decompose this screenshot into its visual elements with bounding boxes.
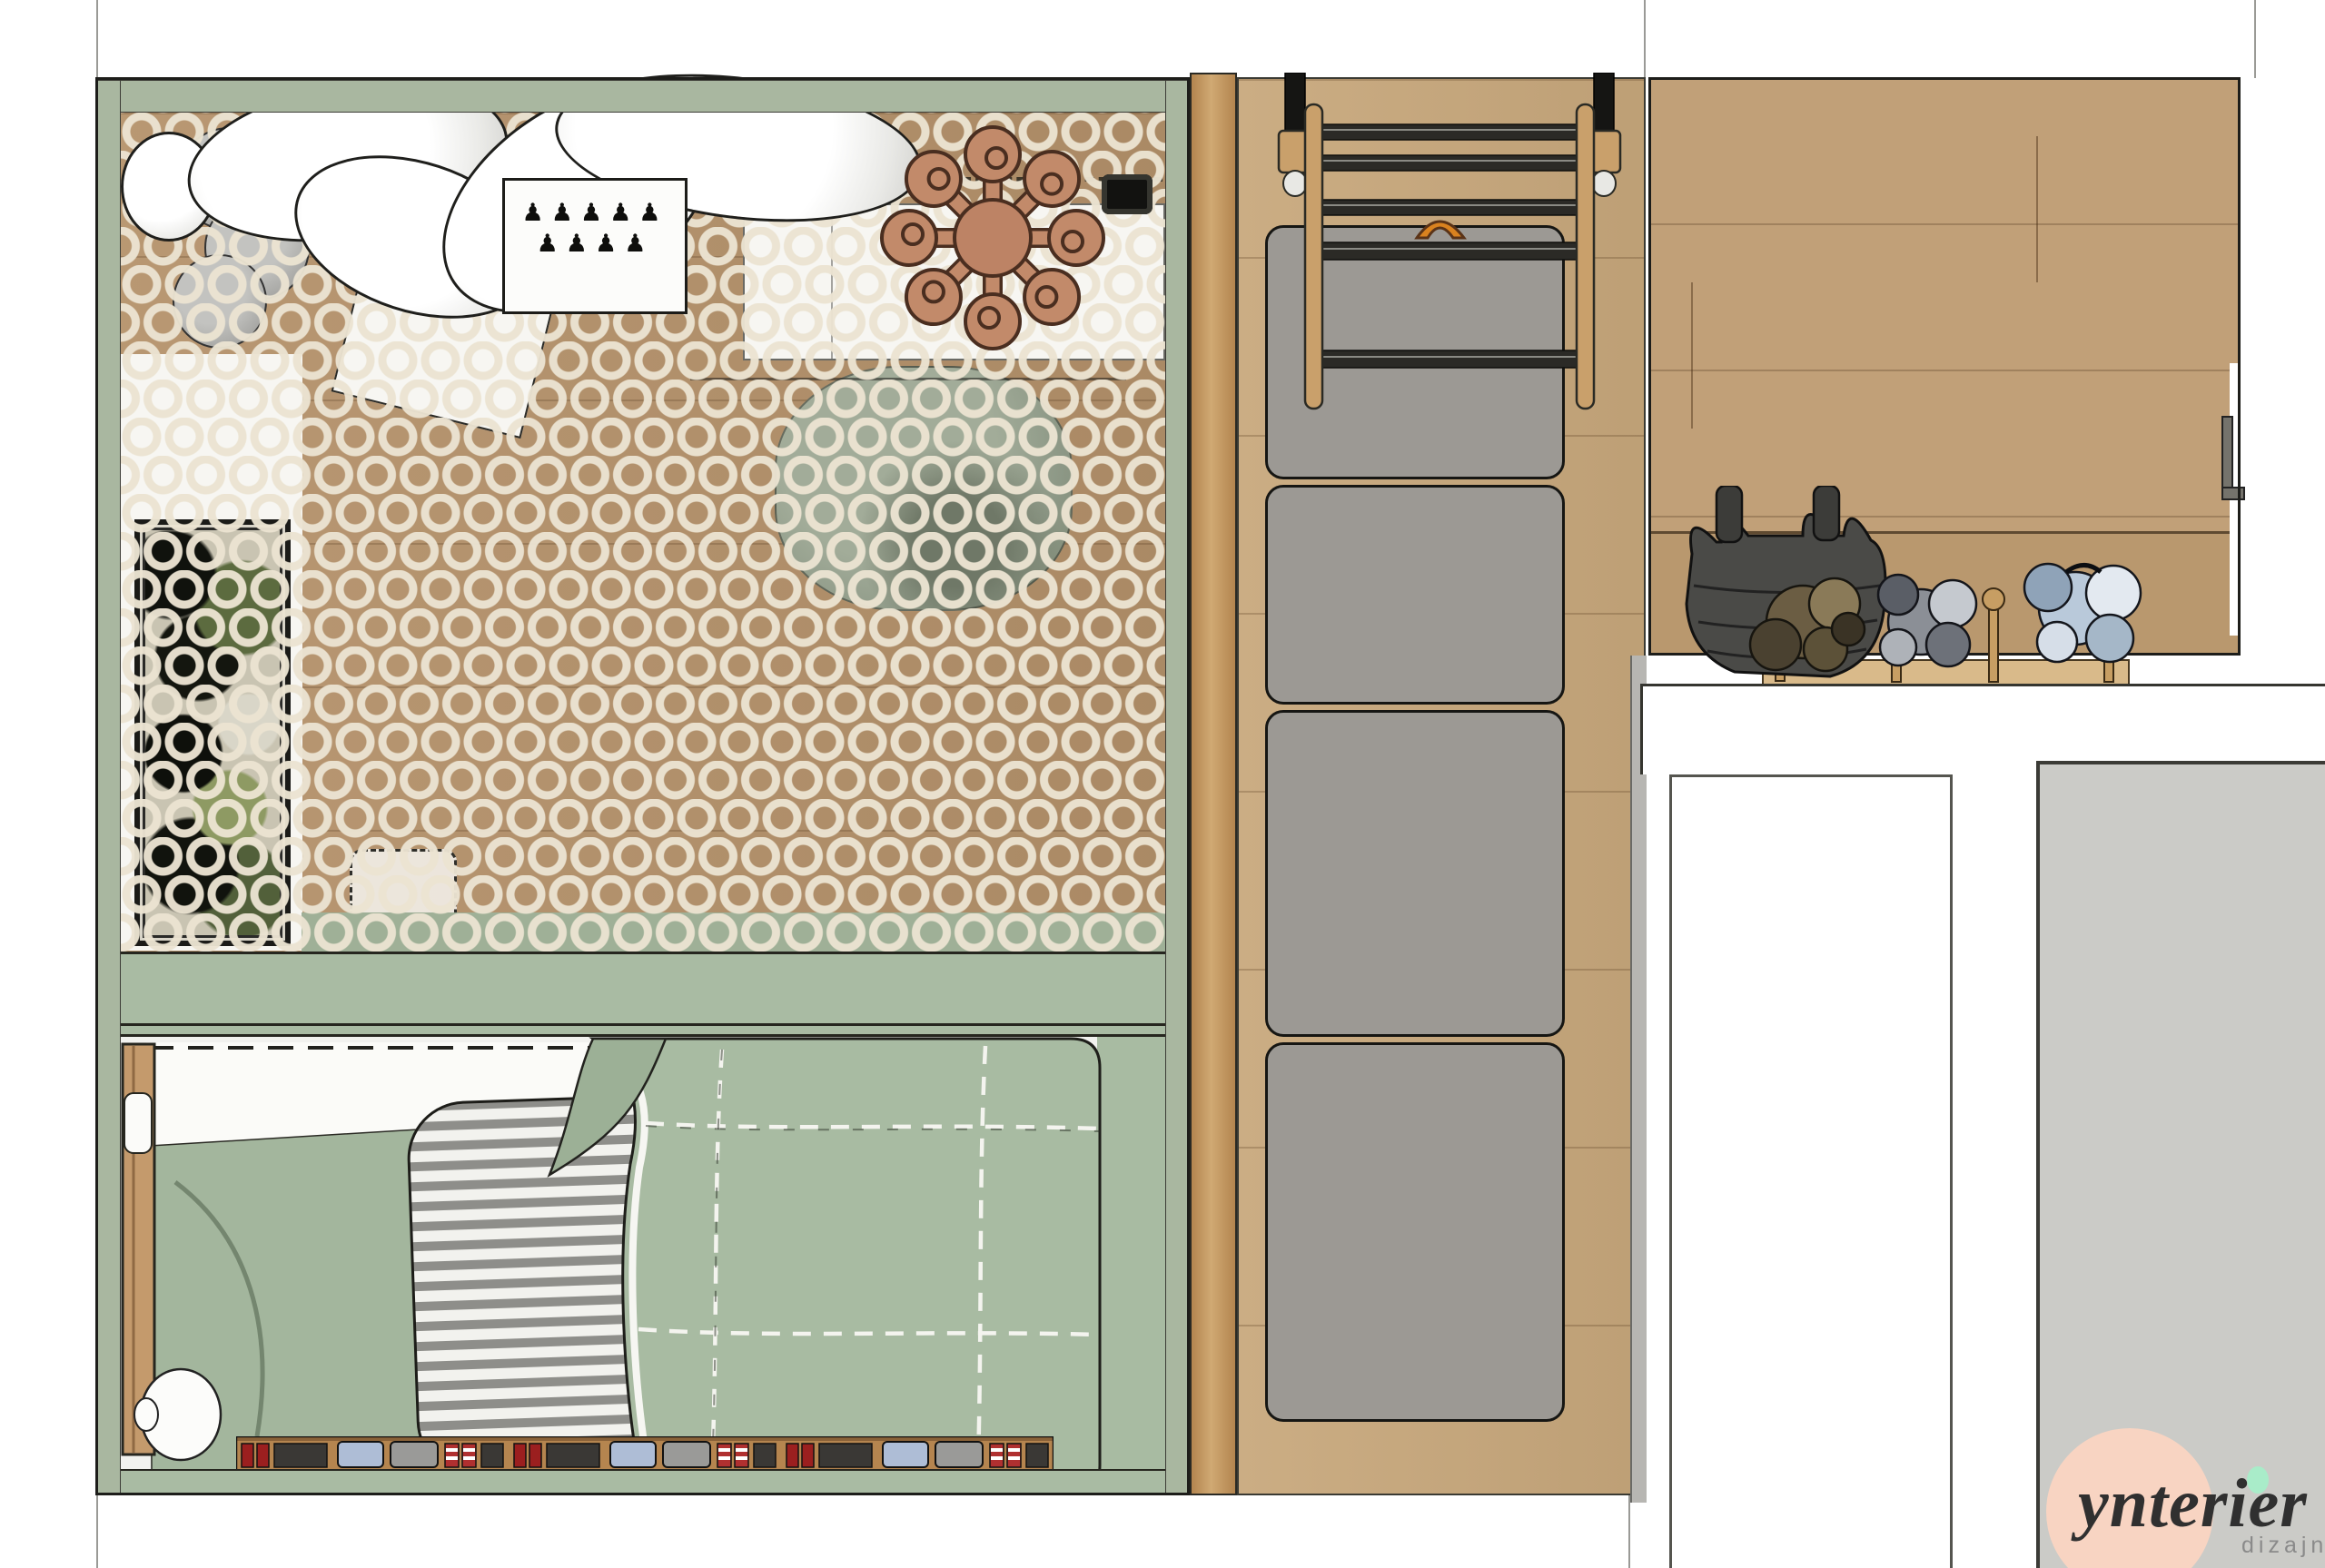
gym-mat-2 — [1265, 485, 1565, 705]
wood-partition-pillar — [1190, 73, 1237, 1495]
section-line-bottom-middle — [1628, 1495, 1630, 1568]
game-pieces-row: ♟♟♟♟♟ — [505, 197, 685, 228]
wall-top — [95, 80, 1190, 113]
bed-foot-book-rail — [236, 1436, 1054, 1471]
logo-subtitle-text: dizajn — [2241, 1533, 2325, 1559]
counter-side-panel — [1630, 656, 1647, 1503]
door-handle[interactable] — [2221, 416, 2233, 492]
wall-left — [95, 80, 121, 1495]
section-line-top-middle — [1644, 0, 1646, 78]
toy-basket-group — [1667, 486, 2239, 690]
counter-cabinet-white — [1669, 774, 1953, 1568]
gym-mat-3 — [1265, 710, 1565, 1037]
divider-inner-line — [95, 1023, 1190, 1026]
wall-bars-ladder — [1271, 73, 1627, 418]
game-pieces-row: ♟♟♟♟ — [505, 228, 685, 259]
section-line-top-right — [2254, 0, 2256, 78]
divider-bench — [95, 952, 1190, 1037]
floor-plan-render: ♟♟♟♟♟ ♟♟♟♟ — [0, 0, 2325, 1568]
plush-gray — [1878, 575, 1976, 666]
rail-left — [1305, 104, 1322, 409]
section-line-bottom-left — [96, 1495, 98, 1568]
wall-right — [1165, 80, 1190, 1495]
bed — [121, 1037, 1165, 1495]
flower-rosette-decor — [870, 115, 1115, 360]
section-line-top-left — [96, 0, 98, 84]
plush-blue — [2024, 564, 2141, 662]
plank-joint — [2036, 136, 2038, 282]
duvet — [549, 1039, 1100, 1494]
gym-mat-4 — [1265, 1042, 1565, 1422]
kids-room: ♟♟♟♟♟ ♟♟♟♟ — [95, 77, 1190, 1495]
bed-platform-right — [1097, 1037, 1165, 1495]
activity-game-board: ♟♟♟♟♟ ♟♟♟♟ — [502, 178, 688, 314]
logo: ynterier dizajn — [2034, 1416, 2325, 1568]
rail-right — [1577, 104, 1594, 409]
logo-brand-text: ynterier — [2078, 1464, 2308, 1543]
plank-joint — [1691, 282, 1693, 429]
orange-clip — [1417, 222, 1464, 238]
bed-frame-bottom — [95, 1469, 1190, 1495]
